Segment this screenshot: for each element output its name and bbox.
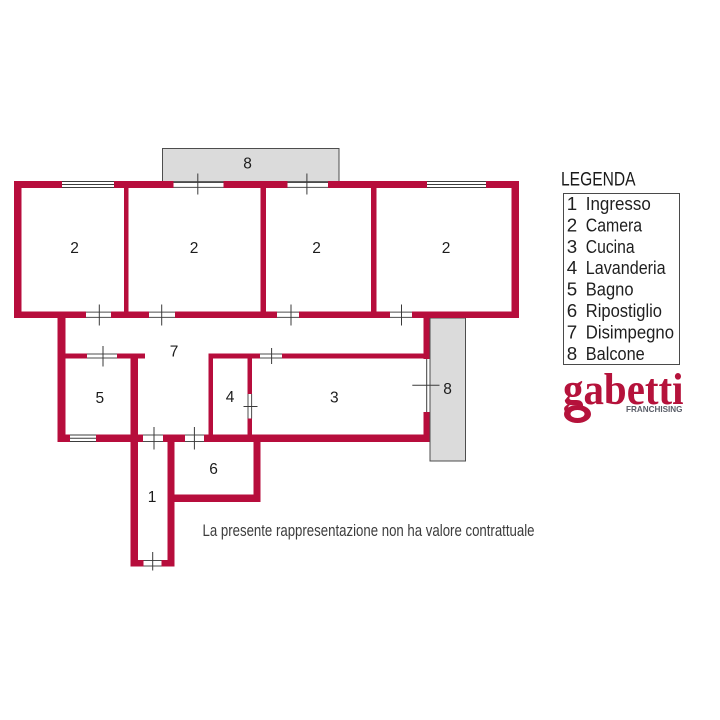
svg-text:8: 8: [443, 381, 452, 398]
svg-text:2: 2: [190, 240, 199, 257]
svg-text:Cucina: Cucina: [586, 236, 635, 257]
svg-text:8: 8: [567, 343, 577, 364]
svg-text:7: 7: [567, 321, 577, 342]
svg-text:2: 2: [567, 214, 577, 235]
svg-text:8: 8: [243, 156, 252, 173]
svg-text:2: 2: [312, 240, 321, 257]
svg-text:7: 7: [170, 343, 179, 360]
svg-text:Ingresso: Ingresso: [586, 193, 651, 214]
svg-text:3: 3: [330, 390, 339, 407]
svg-text:5: 5: [567, 279, 577, 300]
svg-text:Ripostiglio: Ripostiglio: [586, 300, 662, 321]
svg-text:2: 2: [442, 240, 451, 257]
svg-text:4: 4: [567, 257, 577, 278]
svg-text:6: 6: [209, 461, 218, 478]
svg-text:La presente rappresentazione n: La presente rappresentazione non ha valo…: [203, 522, 535, 540]
svg-text:1: 1: [567, 193, 577, 214]
svg-text:LEGENDA: LEGENDA: [561, 169, 636, 191]
svg-text:FRANCHISING: FRANCHISING: [626, 404, 683, 414]
svg-text:Lavanderia: Lavanderia: [586, 257, 666, 278]
svg-text:Camera: Camera: [586, 214, 643, 235]
svg-text:3: 3: [567, 236, 577, 257]
svg-text:6: 6: [567, 300, 577, 321]
svg-text:Disimpegno: Disimpegno: [586, 321, 674, 342]
svg-text:Balcone: Balcone: [586, 343, 645, 364]
svg-text:5: 5: [95, 390, 104, 407]
svg-text:Bagno: Bagno: [586, 279, 634, 300]
svg-text:4: 4: [226, 389, 235, 406]
svg-text:1: 1: [148, 489, 157, 506]
svg-text:2: 2: [70, 240, 79, 257]
